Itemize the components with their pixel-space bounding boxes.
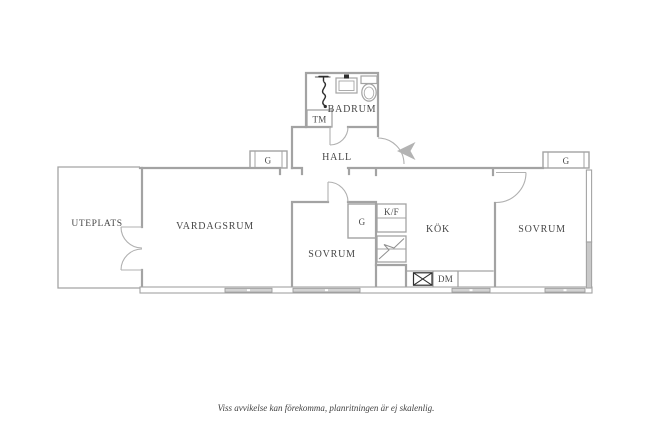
window-mullion <box>470 289 473 291</box>
sink-basin-icon <box>336 75 357 94</box>
window-mullion <box>247 289 250 291</box>
room-label-uteplats: UTEPLATS <box>71 219 122 229</box>
label-closet-sovrum1: G <box>359 217 366 227</box>
label-closet-sovrum2: G <box>563 156 570 166</box>
east-wall-fill <box>586 242 591 288</box>
room-label-kok: KÖK <box>426 223 450 235</box>
entrance-arrow-icon <box>397 142 416 160</box>
wall-sovrum1 <box>292 202 376 287</box>
toilet-icon <box>361 76 377 101</box>
south-wall-band <box>140 287 592 293</box>
wall-top-left <box>140 168 280 174</box>
room-label-hall: HALL <box>322 152 352 163</box>
sink-icon <box>414 273 433 285</box>
wall-hall-south <box>292 168 543 175</box>
footer-disclaimer: Viss avvikelse kan förekomma, planritnin… <box>218 403 435 413</box>
label-closet-hall: G <box>265 156 272 166</box>
room-label-badrum: BADRUM <box>328 104 377 115</box>
stove-icon <box>377 236 406 262</box>
floor-plan: UTEPLATS VARDAGSRUM SOVRUM HALL BADRUM K… <box>0 0 652 435</box>
east-wall <box>586 170 591 288</box>
door-uteplats-french <box>121 227 142 270</box>
wall-hall-west <box>292 127 306 168</box>
door-badrum <box>330 127 348 145</box>
room-label-vardagsrum: VARDAGSRUM <box>176 221 254 232</box>
wall-kok-corner <box>376 265 406 287</box>
south-wall <box>140 287 592 293</box>
room-label-sovrum2: SOVRUM <box>518 224 566 235</box>
label-washing-machine: TM <box>312 115 326 125</box>
window-east <box>586 170 591 242</box>
label-fridge-freezer: K/F <box>384 207 399 217</box>
window-mullion <box>564 289 567 291</box>
door-sovrum2 <box>496 173 526 203</box>
label-dishwasher: DM <box>438 274 453 284</box>
door-sovrum1 <box>328 182 348 202</box>
room-label-sovrum1: SOVRUM <box>308 249 356 260</box>
floor-plan-page: UTEPLATS VARDAGSRUM SOVRUM HALL BADRUM K… <box>0 0 652 435</box>
window-mullion <box>325 289 328 291</box>
